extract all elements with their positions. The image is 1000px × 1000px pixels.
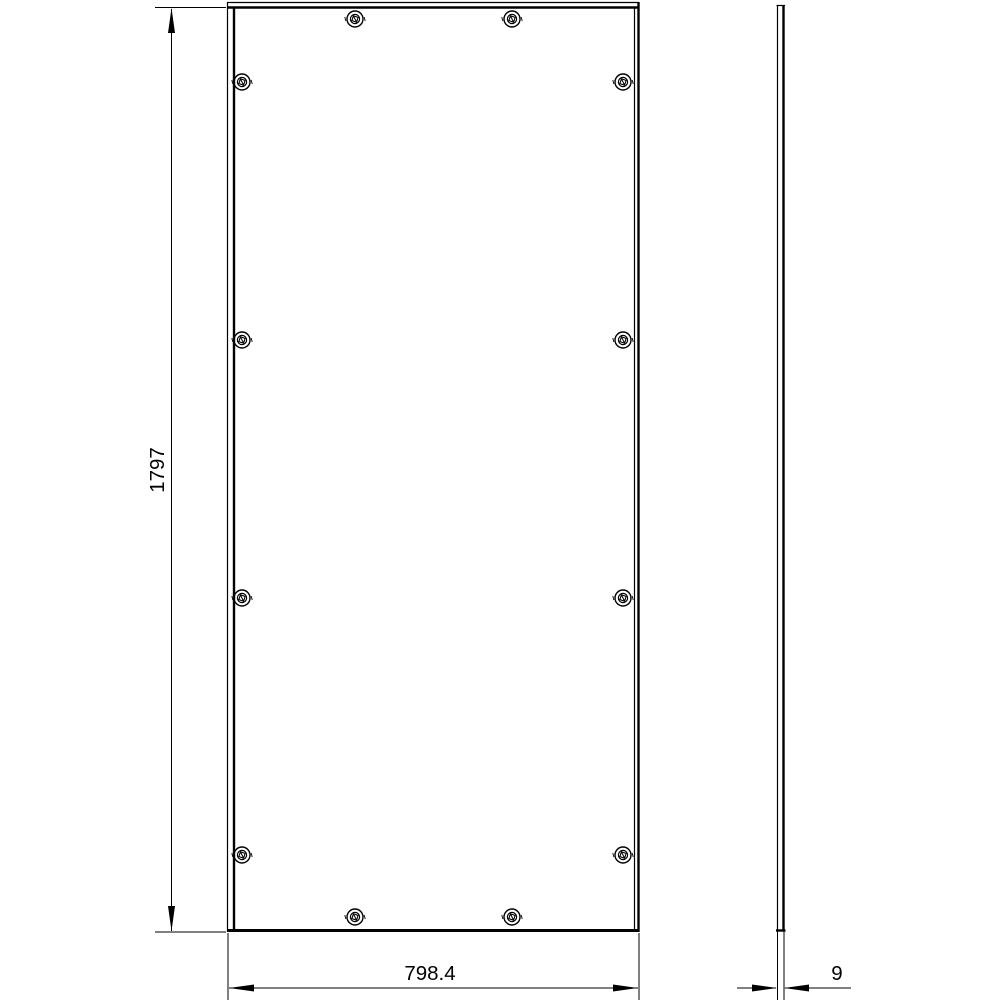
technical-drawing-svg: 1797 798.4 9	[0, 0, 1000, 1000]
arrow-right-icon	[752, 985, 777, 992]
dimension-width: 798.4	[228, 933, 639, 1000]
arrow-up-icon	[168, 8, 175, 33]
dimension-height: 1797	[146, 8, 226, 933]
screw-icon	[613, 74, 633, 90]
screw-icon	[345, 11, 365, 27]
screws-layer	[232, 11, 633, 925]
arrow-left-icon	[784, 985, 809, 992]
screw-icon	[613, 590, 633, 606]
drawing-canvas: 1797 798.4 9	[0, 0, 1000, 1000]
thickness-dimension-value: 9	[831, 962, 842, 985]
dimension-thickness: 9	[737, 931, 851, 1000]
height-dimension-value: 1797	[146, 447, 169, 493]
arrow-right-icon	[613, 985, 638, 992]
screw-icon	[613, 847, 633, 863]
screw-icon	[502, 909, 522, 925]
screw-icon	[613, 332, 633, 348]
screw-icon	[345, 909, 365, 925]
arrow-left-icon	[229, 985, 254, 992]
screw-icon	[502, 11, 522, 27]
width-dimension-value: 798.4	[404, 962, 455, 985]
front-view-panel	[227, 2, 639, 932]
side-profile-view	[776, 5, 786, 931]
arrow-down-icon	[168, 906, 175, 931]
